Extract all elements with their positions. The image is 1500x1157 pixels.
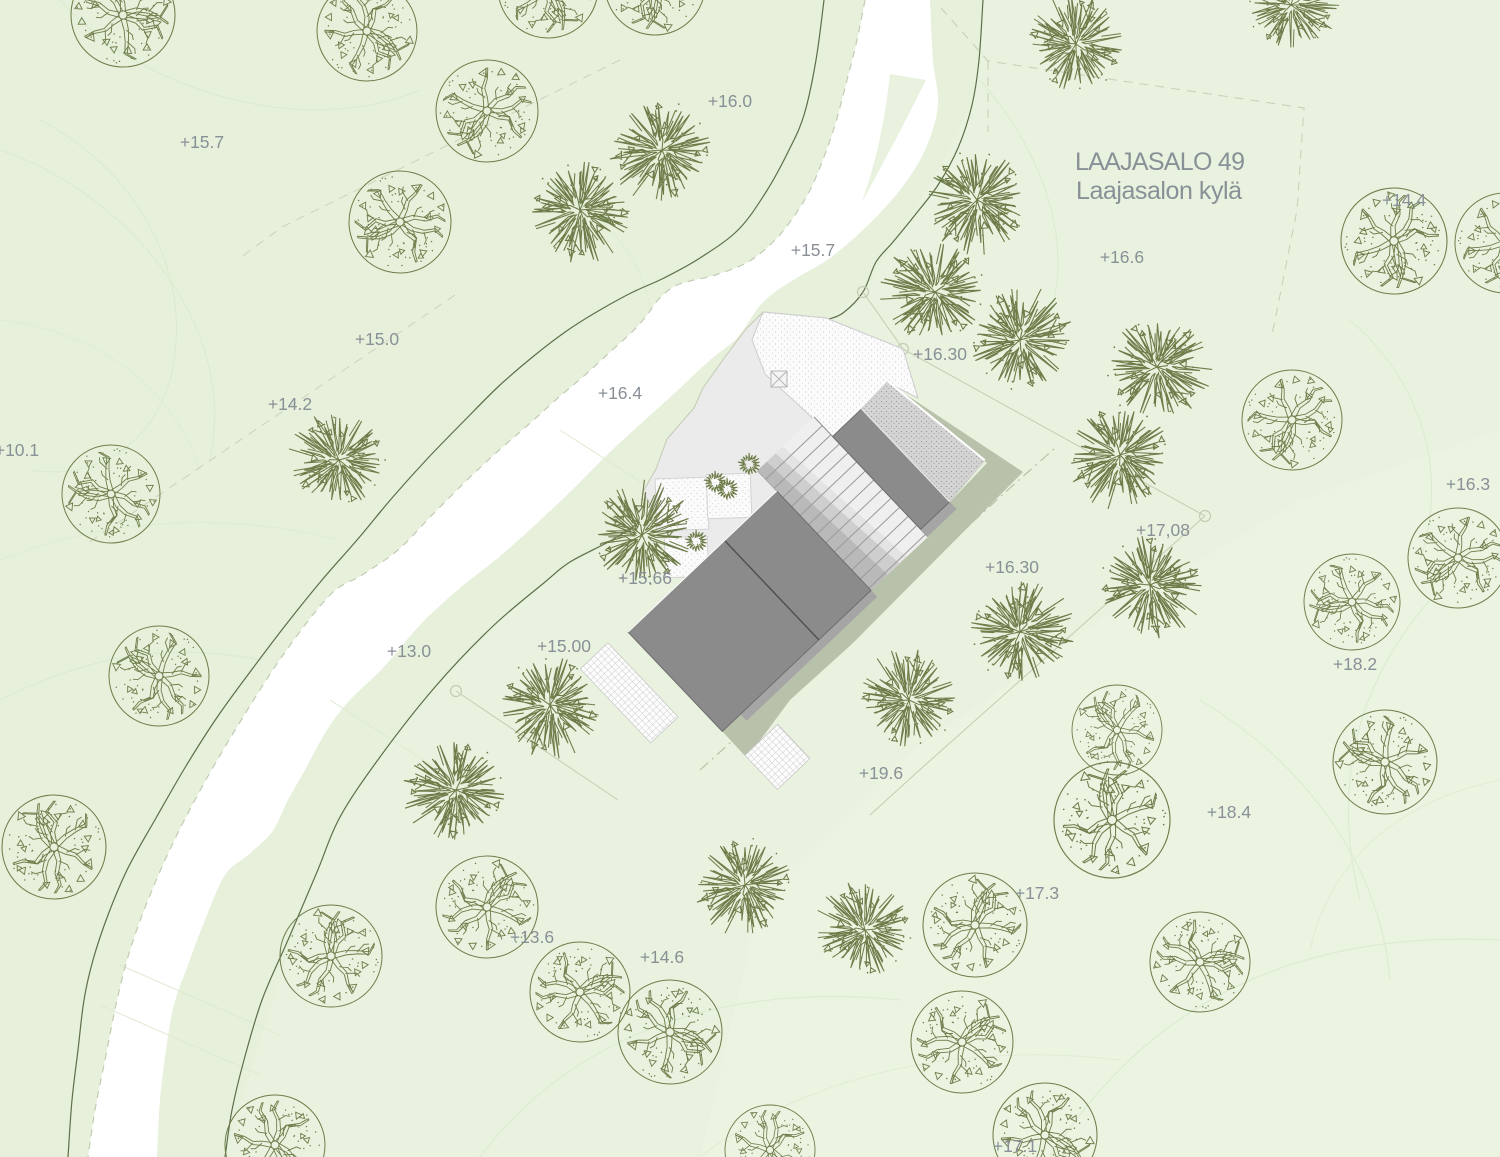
svg-text:+16.30: +16.30 <box>985 557 1039 577</box>
svg-text:+14.4: +14.4 <box>1382 190 1427 210</box>
svg-text:+14.2: +14.2 <box>268 394 312 414</box>
svg-text:+16.0: +16.0 <box>708 91 753 111</box>
svg-text:Laajasalon kylä: Laajasalon kylä <box>1076 177 1242 205</box>
svg-text:+13.6: +13.6 <box>510 927 554 947</box>
svg-text:+13.0: +13.0 <box>387 641 432 661</box>
svg-text:+16.30: +16.30 <box>913 344 967 364</box>
svg-text:+17.1: +17.1 <box>993 1136 1037 1156</box>
svg-text:+15.00: +15.00 <box>537 636 591 656</box>
svg-text:+15.0: +15.0 <box>355 329 400 349</box>
svg-text:+14.6: +14.6 <box>640 947 684 967</box>
svg-text:+15.7: +15.7 <box>180 132 224 152</box>
svg-text:+16.6: +16.6 <box>1100 247 1144 267</box>
svg-text:+17,08: +17,08 <box>1136 520 1190 540</box>
svg-text:+18.4: +18.4 <box>1207 802 1252 822</box>
svg-text:+10.1: +10.1 <box>0 440 39 460</box>
svg-text:+17.3: +17.3 <box>1015 883 1059 903</box>
svg-text:+15.66: +15.66 <box>618 568 672 588</box>
svg-text:+16.4: +16.4 <box>598 383 643 403</box>
svg-text:+19.6: +19.6 <box>859 763 903 783</box>
svg-text:+16.3: +16.3 <box>1446 474 1490 494</box>
svg-text:LAAJASALO 49: LAAJASALO 49 <box>1075 148 1245 176</box>
svg-text:+15.7: +15.7 <box>791 240 835 260</box>
svg-text:+18.2: +18.2 <box>1333 654 1377 674</box>
